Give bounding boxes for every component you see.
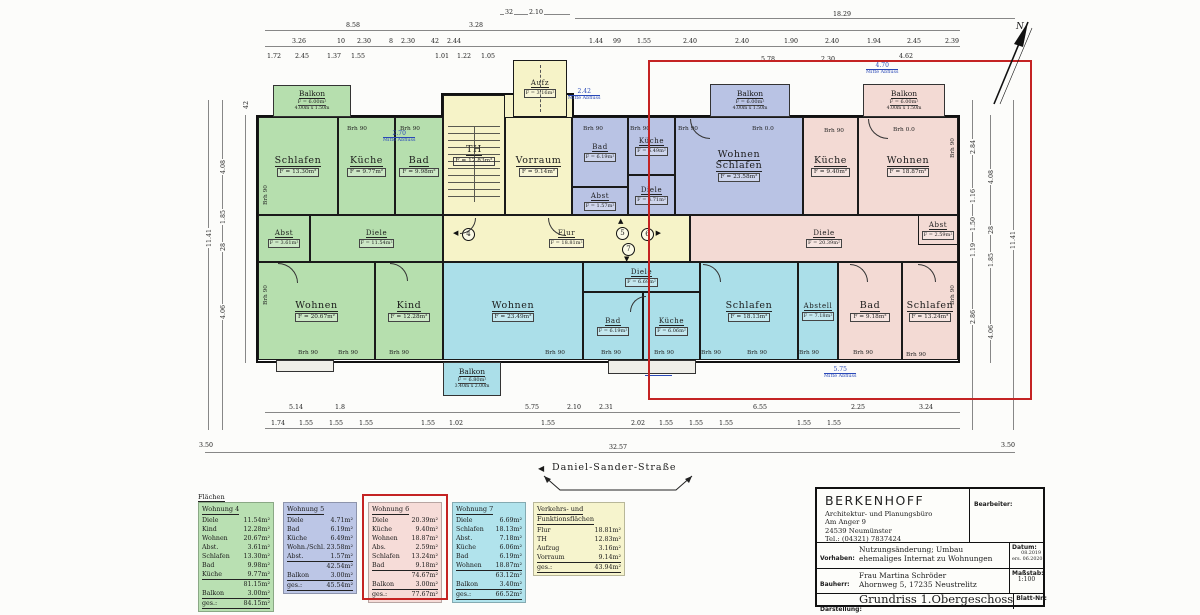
dimension-label: 18.29 <box>832 11 852 18</box>
dimension-label: 11.41 <box>206 228 213 248</box>
legend-row-label: Diele <box>456 516 473 525</box>
dimension-line <box>265 428 960 429</box>
vorhaben-line-2: ehemaliges Internat zu Wohnungen <box>859 554 1009 563</box>
dimension-label: 1.55 <box>540 420 556 427</box>
room-w6-abst: AbstF = 2.59m² <box>918 215 958 245</box>
legend-row: Küche6.06m² <box>456 543 522 552</box>
legend-table-title: Wohnung 4 <box>202 505 270 515</box>
room-area: F = 4.71m² <box>635 196 668 205</box>
dimension-label: 1.55 <box>358 420 374 427</box>
balcony-name: Balkon <box>459 368 485 377</box>
room-vf-aufzug: AufzF = 3.16m² <box>513 60 567 117</box>
room-w6-bad: BadF = 9.18m² <box>838 262 902 360</box>
legend-row-label: Abst. <box>202 543 218 552</box>
section-marker-arrow-icon: ▼ <box>624 256 629 263</box>
dimension-line <box>265 412 960 413</box>
plumbing-label: Mitte Abfluss <box>866 70 898 76</box>
legend-row-label: Küche <box>287 534 307 543</box>
datum-cell: Datum: 08.2019 ers. 06.2020 <box>1009 543 1043 568</box>
dimension-label: 1.55 <box>826 420 842 427</box>
balcony-cyan: BalkonF = 6.80m²3.40m x 2.00m <box>443 362 501 396</box>
legend-row-label: Vorraum <box>537 553 565 562</box>
dimension-label: 2.39 <box>944 38 960 45</box>
legend-row-label: ges.: <box>456 590 471 599</box>
dimension-label: 1.55 <box>796 420 812 427</box>
legend-row-label: Bad <box>287 525 299 534</box>
room-vf-th: THF = 12.83m² <box>443 95 505 215</box>
legend-row-value: 6.06m² <box>499 543 522 552</box>
dimension-label: 2.40 <box>734 38 750 45</box>
dimension-label: 3.50 <box>1000 442 1016 449</box>
dimension-line <box>575 18 1015 19</box>
dimension-line <box>245 115 246 363</box>
legend-row-value: 18.81m² <box>594 526 621 535</box>
legend-row: 63.12m² <box>456 571 522 580</box>
plumbing-label: Mitte Abfluss <box>383 138 415 144</box>
legend-table-title: Wohnung 5 <box>287 505 353 515</box>
room-w7-abstell: AbstellF = 7.18m² <box>798 262 838 360</box>
dimension-label: 2.02 <box>630 420 646 427</box>
blatt-label: Blatt-Nr.: <box>1016 595 1045 602</box>
dimension-label: 3.26 <box>291 38 307 45</box>
legend-row-label: Bad <box>202 561 214 570</box>
room-name: Wohnen <box>887 156 929 167</box>
dimension-label: 1.19 <box>970 242 977 258</box>
dimension-label: 32 <box>504 9 514 16</box>
legend-row-value: 9.77m² <box>247 570 270 579</box>
room-w7-diele: DieleF = 6.69m² <box>583 262 700 292</box>
room-w5-diele: DieleF = 4.71m² <box>628 175 675 215</box>
window-sill-label: Brh 90 <box>747 350 767 356</box>
plumbing-dimension: 2.42 <box>568 88 600 96</box>
room-name: Schlafen <box>907 301 954 312</box>
room-name: Bad <box>860 301 881 312</box>
room-name: Bad <box>592 143 608 152</box>
legend-row: Küche6.49m² <box>287 534 353 543</box>
north-needle-icon <box>982 16 1044 110</box>
dimension-label: 1.55 <box>350 53 366 60</box>
legend-row-value: 63.12m² <box>495 571 522 580</box>
room-w4-diele: DieleF = 11.54m² <box>310 215 443 262</box>
room-area: F = 9.77m² <box>347 168 386 177</box>
entrance-porch-center <box>608 360 696 374</box>
room-vf-flur: FlurF = 18.81m² <box>443 215 690 262</box>
window-sill-label: Brh 90 <box>701 350 721 356</box>
dimension-label: 2.10 <box>528 9 544 16</box>
vorhaben-label: Vorhaben: <box>820 555 855 562</box>
dimension-label: 1.01 <box>434 53 450 60</box>
legend-row: Balkon3.00m² <box>202 589 270 599</box>
window-sill-label: Brh 90 <box>906 352 926 358</box>
dimension-label: 2.45 <box>906 38 922 45</box>
window-sill-label: Brh 90 <box>298 350 318 356</box>
legend-row: Abst.3.61m² <box>202 543 270 552</box>
legend-row-value: 20.67m² <box>243 534 270 543</box>
legend-row: Diele6.69m² <box>456 516 522 525</box>
legend-row-value: 23.58m² <box>326 543 353 552</box>
room-w4-wohnen: WohnenF = 20.67m² <box>258 262 375 360</box>
legend-row: Aufzug3.16m² <box>537 544 621 553</box>
legend-row-label: ges.: <box>287 581 302 590</box>
dimension-label: 4.08 <box>220 159 227 175</box>
legend-row-value: 13.30m² <box>243 552 270 561</box>
plumbing-label: Mitte Abfluss <box>568 96 600 102</box>
dimension-label: 11.41 <box>1010 230 1017 250</box>
legend-row-value: 3.61m² <box>247 543 270 552</box>
room-w4-abst: AbstF = 3.61m² <box>258 215 310 262</box>
legend-row: Diele11.54m² <box>202 516 270 525</box>
balcony-name: Balkon <box>299 90 325 99</box>
legend-row-value: 4.71m² <box>330 516 353 525</box>
room-name: Schlafen <box>275 156 322 167</box>
street-name: Daniel-Sander-Straße <box>552 462 708 473</box>
bauherr-line-1: Frau Martina Schröder <box>859 571 1009 580</box>
legend-row: Vorraum9.14m² <box>537 553 621 563</box>
legend-row-value: 43.94m² <box>594 563 621 572</box>
dimension-label: 99 <box>612 38 622 45</box>
room-area: F = 1.57m² <box>584 202 617 211</box>
legend-row-label: Abst. <box>287 552 303 561</box>
room-name-2: Schlafen <box>716 161 763 172</box>
dimension-label: 5.75 <box>524 404 540 411</box>
north-arrow: N <box>982 16 1044 110</box>
legend-row-label: ges.: <box>202 599 217 608</box>
legend-row: ges.:43.94m² <box>537 563 621 573</box>
room-vf-vorraum: VorraumF = 9.14m² <box>505 117 572 215</box>
dimension-label: 2.45 <box>294 53 310 60</box>
legend-row-label: Schlafen <box>456 525 484 534</box>
dimension-label: 2.30 <box>356 38 372 45</box>
bauherr-label: Bauherr: <box>820 581 850 588</box>
dimension-label: 42 <box>243 100 250 110</box>
dimension-label: 4.06 <box>220 304 227 320</box>
dimension-label: 3.50 <box>198 442 214 449</box>
dimension-label: 8.58 <box>345 22 361 29</box>
balcony-size: 4.00m x 1.50m <box>887 106 922 112</box>
section-marker-6: 6▶ <box>641 228 652 239</box>
room-area: F = 6.49m² <box>635 147 668 156</box>
legend-row-label: Balkon <box>456 580 478 589</box>
dimension-label: 2.10 <box>566 404 582 411</box>
legend-row-value: 12.83m² <box>594 535 621 544</box>
dimension-label: 1.55 <box>658 420 674 427</box>
legend-row-label: Abst. <box>456 534 472 543</box>
dimension-label: 42 <box>430 38 440 45</box>
dimension-label: 1.94 <box>866 38 882 45</box>
balcony-size: 4.00m x 1.50m <box>733 106 768 112</box>
window-sill-label: Brh 90 <box>824 128 844 134</box>
room-name: Küche <box>639 137 664 146</box>
floor-plan-sheet: { "meta": { "street_label": "Daniel-Sand… <box>0 0 1200 600</box>
dimension-label: 1.72 <box>266 53 282 60</box>
room-area: F = 18.13m² <box>728 313 771 322</box>
vorhaben-line-1: Nutzungsänderung; Umbau <box>859 545 1009 554</box>
legend-row: Diele4.71m² <box>287 516 353 525</box>
room-name: Bad <box>409 156 430 167</box>
legend-row-label: TH <box>537 535 547 544</box>
legend-row-value: 3.40m² <box>499 580 522 589</box>
legend-row-value: 9.98m² <box>247 561 270 570</box>
firm-address-2: 24539 Neumünster <box>825 527 969 535</box>
room-area: F = 20.67m² <box>295 313 338 322</box>
north-letter: N <box>1016 22 1024 32</box>
legend-row: Abst.1.57m² <box>287 552 353 562</box>
plumbing-dimension: 2.70 <box>383 130 415 138</box>
dimension-label: 2.40 <box>682 38 698 45</box>
dimension-label: 1.55 <box>718 420 734 427</box>
room-name: Diele <box>641 186 662 195</box>
room-name: Abst <box>275 229 293 238</box>
bauherr-row: Bauherr: Frau Martina Schröder Ahornweg … <box>817 568 1043 593</box>
legend-row-label: Küche <box>456 543 476 552</box>
room-w4-kind: KindF = 12.28m² <box>375 262 443 360</box>
dimension-label: 2.25 <box>850 404 866 411</box>
bauherr-line-2: Ahornweg 5, 17235 Neustrelitz <box>859 580 1009 589</box>
room-area: F = 9.14m² <box>519 168 558 177</box>
section-marker-number: 6 <box>641 228 654 241</box>
window-sill-label: Brh 0.0 <box>893 127 915 133</box>
dimension-label: 10 <box>336 38 346 45</box>
legend-row-value: 11.54m² <box>243 516 270 525</box>
legend-title: Flächen <box>198 493 225 502</box>
room-area: F = 9.98m² <box>399 168 438 177</box>
elevator-centerline <box>540 65 541 112</box>
section-marker-arrow-icon: ▲ <box>618 218 623 225</box>
plumbing-dimension: 4.70 <box>866 62 898 70</box>
legend-row: Balkon3.00m² <box>287 571 353 581</box>
legend-row-label: Balkon <box>287 571 309 580</box>
dimension-label: 2.84 <box>970 139 977 155</box>
dimension-label: 4.08 <box>988 169 995 185</box>
section-marker-5: 5▲ <box>616 227 627 238</box>
legend-row-label: Kind <box>202 525 217 534</box>
legend-row: Kind12.28m² <box>202 525 270 534</box>
plumbing-note: 5.75Mitte Abfluss <box>824 366 856 380</box>
massstab-cell: Maßstab: 1:100 <box>1009 569 1043 593</box>
legend-row-value: 6.49m² <box>330 534 353 543</box>
plumbing-dimension: 5.75 <box>824 366 856 374</box>
room-area: F = 7.18m² <box>802 312 835 321</box>
balcony-area: F = 6.00m² <box>736 99 765 106</box>
window-sill-label: Brh 90 <box>347 126 367 132</box>
legend-row-label: Balkon <box>202 589 224 598</box>
bearbeiter-label: Bearbeiter: <box>974 501 1012 508</box>
dimension-label: 1.8 <box>334 404 346 411</box>
room-name: Küche <box>659 317 684 326</box>
room-name: Diele <box>366 229 387 238</box>
room-name: Schlafen <box>726 301 773 312</box>
legend-row-value: 12.28m² <box>243 525 270 534</box>
room-w4-schlafen: SchlafenF = 13.30m² <box>258 117 338 215</box>
room-area: F = 11.54m² <box>359 239 395 248</box>
window-sill-label: Brh 90 <box>630 126 650 132</box>
legend-row: Abst.7.18m² <box>456 534 522 543</box>
room-area: F = 12.28m² <box>388 313 431 322</box>
legend-row: Bad6.19m² <box>456 552 522 561</box>
legend-row-value: 81.15m² <box>243 580 270 589</box>
balcony-name: Balkon <box>891 90 917 99</box>
legend-row-label: Wohn./Schl. <box>287 543 325 552</box>
dimension-line <box>208 100 209 430</box>
legend-row: Schlafen13.30m² <box>202 552 270 561</box>
room-area: F = 3.61m² <box>268 239 301 248</box>
legend-row-label: Bad <box>456 552 468 561</box>
balcony-size: 3.40m x 2.00m <box>455 384 490 390</box>
dimension-label: 2.30 <box>820 56 836 63</box>
room-area: F = 2.59m² <box>922 231 955 240</box>
legend-table-title: Verkehrs- undFunktionsflächen <box>537 505 621 525</box>
legend-row-label: Diele <box>287 516 304 525</box>
blatt-cell: Blatt-Nr.: <box>1013 594 1047 609</box>
dimension-label: 1.55 <box>328 420 344 427</box>
dimension-label: 1.50 <box>970 216 977 232</box>
plumbing-note: 4.70Mitte Abfluss <box>866 62 898 76</box>
section-marker-7: 7▼ <box>622 243 633 254</box>
balcony-green: BalkonF = 6.00m²4.00m x 1.50m <box>273 85 351 117</box>
legend-row-label: Aufzug <box>537 544 559 553</box>
room-area: F = 13.30m² <box>277 168 320 177</box>
window-sill-label: Brh 0.0 <box>752 126 774 132</box>
legend-table-wohnung-7: Wohnung 7Diele6.69m²Schlafen18.13m²Abst.… <box>452 502 526 603</box>
window-sill-label: Brh 90 <box>263 285 269 305</box>
plumbing-note: 2.70Mitte Abfluss <box>383 130 415 144</box>
dimension-label: 1.55 <box>688 420 704 427</box>
window-sill-label: Brh 90 <box>583 126 603 132</box>
drawing-title: Grundriss 1.Obergeschoss <box>857 594 1013 609</box>
dimension-label: 1.74 <box>270 420 286 427</box>
room-name: Diele <box>813 229 834 238</box>
legend-row-value: 7.18m² <box>499 534 522 543</box>
dimension-label: 1.37 <box>326 53 342 60</box>
section-marker-number: 5 <box>616 227 629 240</box>
dimension-line <box>265 46 960 47</box>
dimension-label: 5.78 <box>760 56 776 63</box>
balcony-violet: BalkonF = 6.00m²4.00m x 1.50m <box>710 84 790 117</box>
room-name: Küche <box>350 156 383 167</box>
legend-row: Schlafen18.13m² <box>456 525 522 534</box>
legend-table-wohnung-4: Wohnung 4Diele11.54m²Kind12.28m²Wohnen20… <box>198 502 274 612</box>
window-sill-label: Brh 90 <box>389 350 409 356</box>
legend-row-value: 18.87m² <box>495 561 522 570</box>
firm-subtitle: Architektur- und Planungsbüro <box>825 510 969 518</box>
bearbeiter-cell: Bearbeiter: <box>969 489 1043 542</box>
dimension-label: 32.57 <box>608 444 628 451</box>
legend-table-verkehrsflaechen: Verkehrs- undFunktionsflächenFlur18.81m²… <box>533 502 625 576</box>
legend-row-value: 6.19m² <box>499 552 522 561</box>
dimension-label: 1.22 <box>456 53 472 60</box>
dimension-label: 4.62 <box>898 53 914 60</box>
dimension-line <box>1013 100 1014 430</box>
legend-row: Wohn./Schl.23.58m² <box>287 543 353 552</box>
room-name: Abst <box>591 192 609 201</box>
room-area: F = 20.39m² <box>806 239 842 248</box>
room-area: F = 9.18m² <box>850 313 889 322</box>
street-arrow <box>538 473 698 493</box>
room-area: F = 18.81m² <box>549 239 585 248</box>
room-area: F = 9.40m² <box>811 168 850 177</box>
legend-row-value: 42.54m² <box>326 562 353 571</box>
legend-table-title: Wohnung 7 <box>456 505 522 515</box>
legend-row: Bad9.98m² <box>202 561 270 570</box>
dimension-label: 1.16 <box>970 188 977 204</box>
bauherr-text: Frau Martina Schröder Ahornweg 5, 17235 … <box>857 569 1009 593</box>
legend-row-value: 6.19m² <box>330 525 353 534</box>
legend-row-value: 3.00m² <box>247 589 270 598</box>
dimension-line <box>265 30 960 31</box>
room-w5-abst: AbstF = 1.57m² <box>572 187 628 215</box>
legend-row: TH12.83m² <box>537 535 621 544</box>
dimension-label: 1.85 <box>988 252 995 268</box>
street-direction-icon: ◀ <box>538 464 544 473</box>
balcony-name: Balkon <box>737 90 763 99</box>
room-area: F = 6.69m² <box>625 278 658 287</box>
legend-row-value: 18.13m² <box>495 525 522 534</box>
room-name: Vorraum <box>516 156 562 167</box>
legend-row: Bad6.19m² <box>287 525 353 534</box>
dimension-label: 1.55 <box>636 38 652 45</box>
darstellung-row: Darstellung: Grundriss 1.Obergeschoss Bl… <box>817 593 1043 609</box>
legend-row-value: 45.54m² <box>326 581 353 590</box>
legend-row-label: Flur <box>537 526 550 535</box>
room-area: F = 18.87m² <box>887 168 930 177</box>
firm-address-1: Am Anger 9 <box>825 518 969 526</box>
legend-highlight-box <box>362 494 448 600</box>
firm-info: BERKENHOFF Architektur- und Planungsbüro… <box>817 489 969 542</box>
legend-row: Küche9.77m² <box>202 570 270 580</box>
legend-row-label: Schlafen <box>202 552 230 561</box>
dimension-label: 1.05 <box>480 53 496 60</box>
legend-row-value: 66.52m² <box>495 590 522 599</box>
balcony-pink: BalkonF = 6.00m²4.00m x 1.50m <box>863 84 945 117</box>
room-area: F = 13.24m² <box>909 313 952 322</box>
window-sill-label: Brh 90 <box>799 350 819 356</box>
room-name: Bad <box>605 317 621 326</box>
legend-row-value: 6.69m² <box>499 516 522 525</box>
dimension-label: 2.31 <box>598 404 614 411</box>
vorhaben-text: Nutzungsänderung; Umbau ehemaliges Inter… <box>857 543 1009 568</box>
dimension-label: 2.40 <box>824 38 840 45</box>
dimension-line <box>222 100 223 430</box>
massstab-value: 1:100 <box>1012 577 1041 583</box>
dimension-label: 1.85 <box>220 209 227 225</box>
dimension-line <box>205 452 1015 453</box>
datum-label: Datum: <box>1012 544 1041 551</box>
window-sill-label: Brh 90 <box>853 350 873 356</box>
room-name: Kind <box>397 301 422 312</box>
legend-row: ges.:45.54m² <box>287 581 353 591</box>
plumbing-label: Mitte Abfluss <box>824 374 856 380</box>
room-name: Küche <box>814 156 847 167</box>
room-name: Abst <box>929 221 947 230</box>
room-name: Diele <box>631 268 652 277</box>
legend-row: Balkon3.40m² <box>456 580 522 590</box>
dimension-label: 28 <box>988 225 995 235</box>
window-sill-label: Brh 90 <box>654 350 674 356</box>
dimension-label: 28 <box>220 242 227 252</box>
window-sill-label: Brh 90 <box>263 185 269 205</box>
room-area: F = 6.19m² <box>584 153 617 162</box>
legend-row-value: 84.15m² <box>243 599 270 608</box>
title-block: BERKENHOFF Architektur- und Planungsbüro… <box>815 487 1045 607</box>
dimension-label: 5.14 <box>288 404 304 411</box>
dimension-label: 1.55 <box>420 420 436 427</box>
dimension-label: 2.44 <box>446 38 462 45</box>
window-sill-label: Brh 90 <box>950 285 956 305</box>
legend-row-value: 3.16m² <box>598 544 621 553</box>
dimension-label: 1.44 <box>588 38 604 45</box>
window-sill-label: Brh 90 <box>338 350 358 356</box>
legend-row-label: Wohnen <box>456 561 482 570</box>
